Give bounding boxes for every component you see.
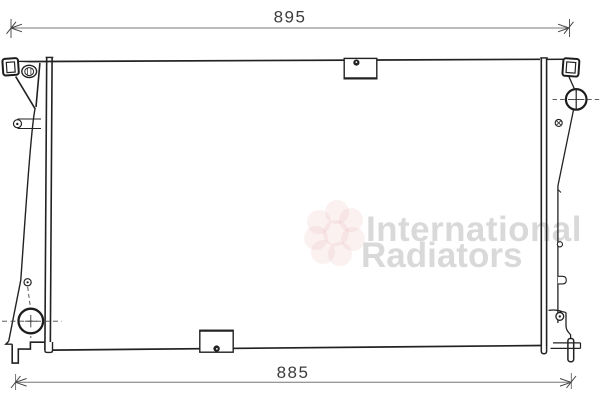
svg-text:885: 885 [277,363,310,382]
svg-text:895: 895 [274,8,307,27]
svg-text:Radiators: Radiators [361,236,522,275]
